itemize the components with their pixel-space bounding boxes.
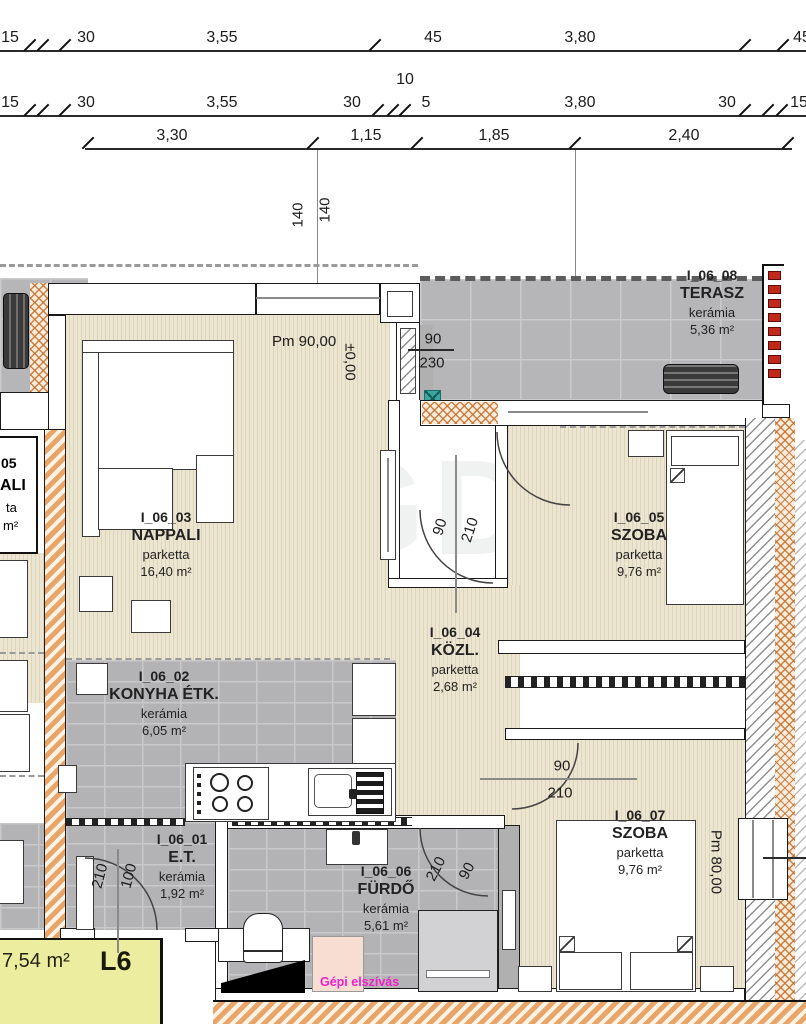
dim-label: 3,80 [564, 29, 595, 47]
shower [418, 910, 498, 992]
dim-label: 5 [422, 94, 431, 112]
terasz-bench [663, 364, 739, 394]
door-dim-line [117, 849, 119, 953]
railing-post [768, 299, 781, 308]
blanket-fold [677, 936, 693, 952]
nightstand [700, 966, 734, 992]
dim-label: 1,85 [478, 127, 509, 145]
room-label-szoba05: I_06_05 SZOBA parketta 9,76 m² [611, 508, 667, 581]
dim-label-140: 140 [290, 202, 307, 227]
bottom-insulated-wall [213, 1000, 806, 1024]
railing-post [768, 341, 781, 350]
dim-label: 3,55 [206, 94, 237, 112]
room-name: NAPPALI [131, 526, 200, 547]
dim-label: 30 [718, 94, 736, 112]
window-frame-line [772, 820, 774, 898]
room-id: I_06_07 [612, 806, 668, 824]
door-dim: 230 [419, 355, 444, 372]
door-dim-line [480, 778, 637, 780]
terasz-railing [762, 264, 784, 404]
terrace-bench-left [3, 293, 29, 369]
room-area: 16,40 m² [131, 564, 200, 581]
szoba07-window [738, 818, 788, 900]
kitchen-cabinet [76, 663, 108, 695]
room-name: KONYHA ÉTK. [109, 685, 219, 706]
neighbor-area-fragment: m² [3, 518, 18, 533]
dim-label: 45 [793, 29, 806, 47]
room-id: I_06_06 [358, 862, 415, 880]
room-name: FÜRDŐ [358, 880, 415, 901]
fridge [352, 663, 396, 716]
dim-label: 3,80 [564, 94, 595, 112]
dim-label: 1,15 [350, 127, 381, 145]
room-label-szoba07: I_06_07 SZOBA parketta 9,76 m² [612, 806, 668, 879]
level-mark-pm80: Pm 80,00 [708, 830, 725, 894]
stove [193, 767, 269, 820]
vent-note: Gépi elszívás [320, 975, 399, 989]
faucet [349, 789, 357, 799]
room-floor: parketta [612, 845, 668, 862]
kozl-top-wall [388, 578, 508, 588]
nappali-window [256, 283, 380, 315]
dish-rack [356, 772, 384, 814]
room-area: 2,68 m² [430, 679, 481, 696]
nightstand [518, 966, 552, 992]
room-id: I_06_01 [157, 830, 208, 848]
railing-post [768, 285, 781, 294]
furdo-door-gap [415, 817, 490, 828]
dim-label: 30 [343, 94, 361, 112]
overhang-dashed-line [0, 264, 418, 267]
dim-label: 30 [77, 94, 95, 112]
balcony-door-leaf [400, 328, 416, 394]
blanket-fold [670, 468, 685, 483]
room-floor: kerámia [109, 706, 219, 723]
side-table [196, 455, 234, 523]
room-area: 6,05 m² [109, 723, 219, 740]
szoba07-door-gap [512, 730, 578, 739]
room-area: 5,36 m² [680, 322, 744, 339]
room-floor: kerámia [157, 869, 208, 886]
door-dim: 210 [547, 785, 572, 802]
room-id: I_06_08 [680, 266, 744, 284]
room-name: TERASZ [680, 284, 744, 305]
szoba05-desk [628, 430, 664, 457]
furdo-left-wall [215, 815, 228, 1000]
door-dim: 90 [425, 331, 442, 348]
room-area: 9,76 m² [611, 564, 667, 581]
room-area: 5,61 m² [358, 918, 415, 935]
neighbor-name-fragment: ALI [0, 477, 26, 495]
railing-post [768, 355, 781, 364]
room-id: I_06_03 [131, 508, 200, 526]
coffee-table [79, 576, 113, 612]
dim-label-140: 140 [317, 197, 334, 222]
room-floor: parketta [611, 547, 667, 564]
neighbor-furniture [0, 840, 24, 904]
room-label-kozl: I_06_04 KÖZL. parketta 2,68 m² [430, 623, 481, 696]
floor-plan: 15 30 3,55 45 3,80 45 10 15 30 3,55 30 5… [0, 0, 806, 1024]
et-top-comb [66, 818, 185, 826]
sink-basin [314, 774, 352, 808]
railing-base [762, 404, 790, 418]
shower-drain [426, 970, 490, 978]
stove-knobs [197, 774, 201, 814]
room-id: I_06_04 [430, 623, 481, 641]
small-cabinet [58, 765, 77, 793]
neighbor-floor-fragment: ta [6, 500, 17, 515]
kozl-szoba05-wall [495, 425, 508, 585]
room-name: KÖZL. [430, 641, 481, 662]
room-floor: kerámia [680, 305, 744, 322]
railing-post [768, 327, 781, 336]
room-floor: parketta [430, 662, 481, 679]
room-id: I_06_02 [109, 667, 219, 685]
shaft-inner [502, 890, 516, 950]
room-floor: parketta [131, 547, 200, 564]
neighbor-dashed [0, 652, 44, 654]
dim-line-row2 [0, 115, 806, 117]
loggia-area: 7,54 m² [2, 950, 70, 973]
szoba05-top-dashed [560, 426, 745, 428]
entry-door-leaf [76, 856, 94, 930]
loggia-code: L6 [100, 946, 132, 977]
stove-burner [212, 796, 228, 812]
blanket-fold [559, 936, 575, 952]
tall-cabinet [352, 718, 396, 768]
dim-label: 3,30 [156, 127, 187, 145]
window-frame-line [752, 820, 754, 898]
room-name: SZOBA [611, 526, 667, 547]
toilet [243, 913, 283, 963]
neighbor-furniture [0, 660, 28, 712]
szoba05-bottom-wall [498, 640, 745, 654]
neighbor-furniture [0, 560, 28, 638]
terasz-wall-insulation [422, 402, 498, 424]
exterior-wall-right-outer [795, 440, 806, 1000]
room-label-et: I_06_01 E.T. kerámia 1,92 m² [157, 830, 208, 903]
door-dim: 90 [554, 758, 571, 775]
stove-burner [237, 775, 253, 791]
bathroom-faucet [352, 831, 360, 845]
room-floor: kerámia [358, 901, 415, 918]
exterior-wall-right [745, 418, 775, 1008]
insulation-strip-left [30, 283, 48, 392]
szoba05-pillow [671, 436, 739, 466]
dim-label: 15 [790, 94, 806, 112]
neighbor-id-fragment: 05 [1, 455, 17, 471]
szoba05-window [508, 402, 648, 424]
dim-label: 15 [1, 94, 19, 112]
party-wall [44, 430, 66, 938]
nappali-konyha-dashed [66, 658, 390, 660]
railing-post [768, 271, 781, 280]
szoba07-pillow [559, 952, 622, 990]
szoba07-pillow [630, 952, 693, 990]
dim-line-row1 [0, 50, 806, 52]
room-label-nappali: I_06_03 NAPPALI parketta 16,40 m² [131, 508, 200, 581]
dim-label: 10 [396, 71, 414, 89]
door-dim-line [455, 455, 457, 613]
room-label-furdo: I_06_06 FÜRDŐ kerámia 5,61 m² [358, 862, 415, 935]
exterior-wall-top [48, 283, 256, 315]
insulation-right [775, 418, 795, 1008]
door-dim-line [408, 349, 454, 351]
dim-label: 3,55 [206, 29, 237, 47]
dim-label: 2,40 [668, 127, 699, 145]
sofa-seat [98, 352, 234, 470]
toilet-tank-line [244, 950, 282, 952]
railing-post [768, 369, 781, 378]
level-mark-zero: ±0,00 [342, 343, 359, 380]
stove-burner [237, 796, 253, 812]
vent-wall-comb [505, 676, 745, 688]
room-label-terasz: I_06_08 TERASZ kerámia 5,36 m² [680, 266, 744, 339]
stove-burner [210, 773, 229, 792]
sliding-door-line [387, 458, 389, 552]
dim-label: 30 [77, 29, 95, 47]
railing-post [768, 313, 781, 322]
dim-label: 45 [424, 29, 442, 47]
dim-line-row3 [85, 148, 792, 150]
balcony-door-jamb [387, 291, 413, 317]
kozl-floor [388, 585, 520, 825]
tv-bench [131, 600, 171, 633]
nappali-west-wall [48, 315, 66, 430]
room-name: SZOBA [612, 824, 668, 845]
room-area: 1,92 m² [157, 886, 208, 903]
room-name: E.T. [157, 848, 208, 869]
neighbor-furniture [0, 714, 30, 772]
level-mark-pm90: Pm 90,00 [272, 333, 336, 350]
dim-label: 15 [1, 29, 19, 47]
window-mid-line [256, 297, 380, 299]
neighbor-dashed [0, 775, 44, 777]
window-extension-line [763, 857, 806, 859]
neighbor-room-box [0, 436, 38, 554]
room-id: I_06_05 [611, 508, 667, 526]
window-mid-line [508, 411, 648, 413]
room-label-konyha: I_06_02 KONYHA ÉTK. kerámia 6,05 m² [109, 667, 219, 740]
room-area: 9,76 m² [612, 862, 668, 879]
